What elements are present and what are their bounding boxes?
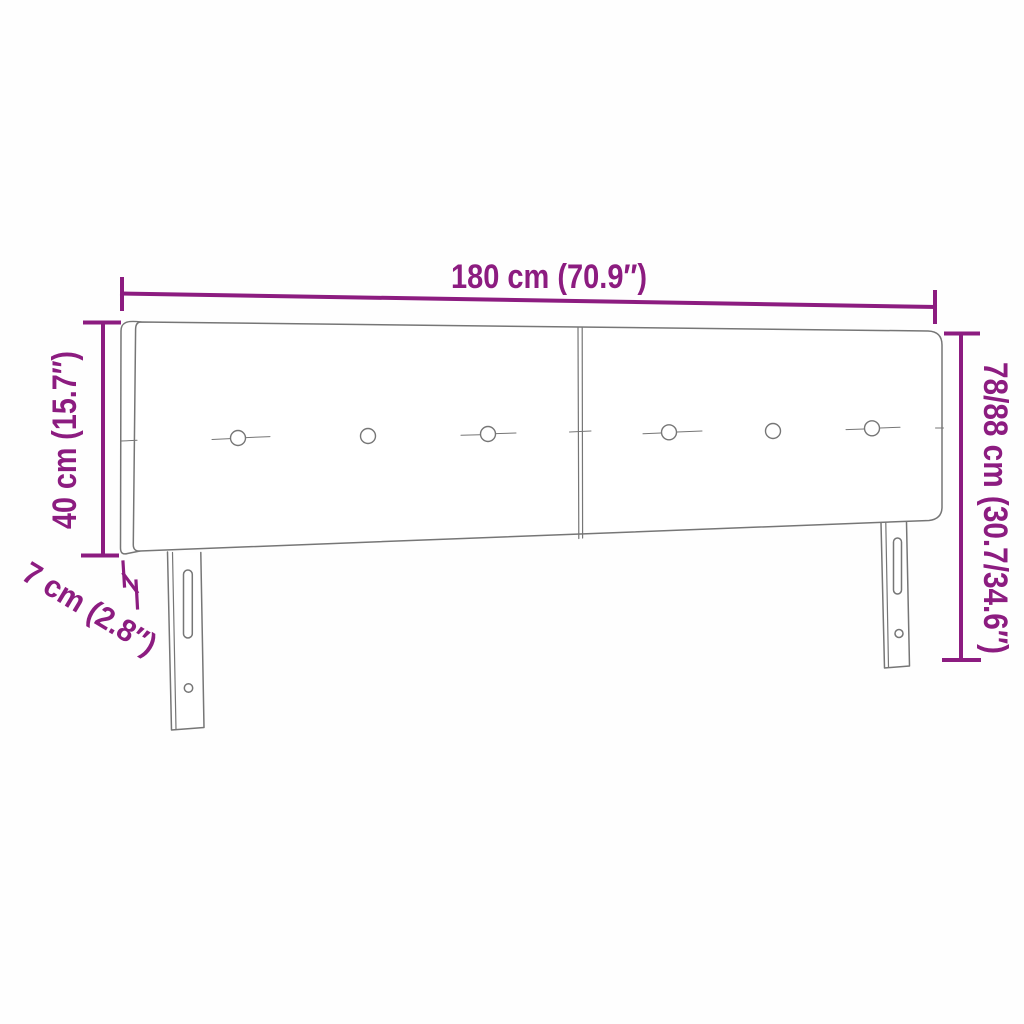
width-dimension-label: 180 cm (70.9″) (451, 258, 647, 296)
product-dimension-diagram: 180 cm (70.9″) 40 cm (15.7″) 78/88 cm (3… (0, 0, 1024, 1024)
total-height-dimension-line (944, 334, 979, 661)
panel-height-dimension-line (83, 323, 119, 556)
depth-dimension-mark (123, 562, 138, 608)
total-height-dimension-label: 78/88 cm (30.7/34.6″) (976, 362, 1014, 654)
headboard-drawing (121, 321, 944, 730)
depth-dimension-label: 7 cm (2.8″) (16, 555, 163, 662)
right-leg (881, 522, 910, 668)
headboard-front-face (133, 322, 942, 551)
panel-height-dimension-label: 40 cm (15.7″) (46, 351, 84, 529)
left-seam-tick (121, 440, 137, 441)
diagram-canvas: 180 cm (70.9″) 40 cm (15.7″) 78/88 cm (3… (0, 0, 1024, 1024)
left-leg (168, 552, 205, 730)
